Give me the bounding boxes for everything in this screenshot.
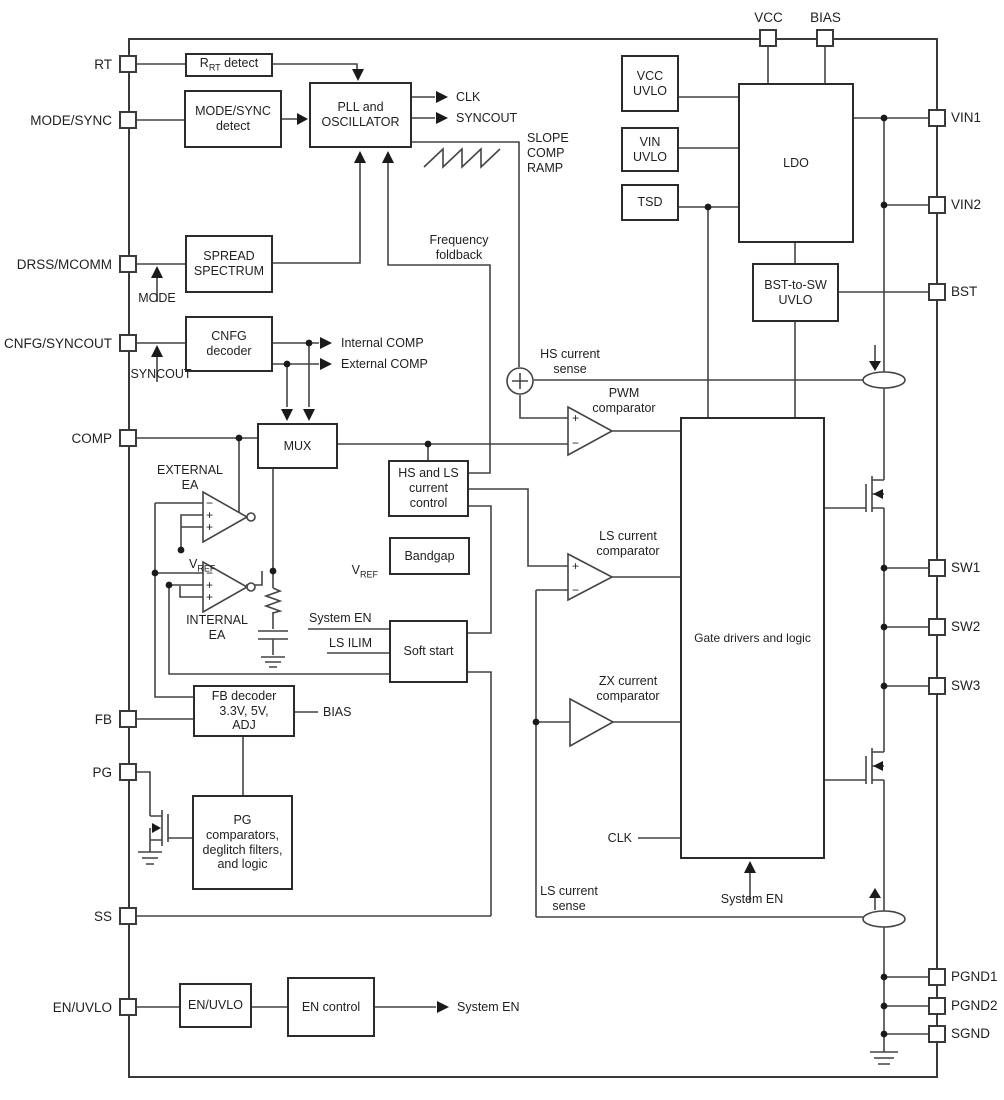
block-rrt-detect: RRT detect [185,53,273,77]
label-system-en-out: System EN [457,1000,520,1015]
pin-pg [119,763,137,781]
pin-label-sw1: SW1 [951,561,980,575]
pin-label-vin1: VIN1 [951,111,981,125]
pin-mode-sync [119,111,137,129]
pin-label-sw3: SW3 [951,679,980,693]
block-ldo: LDO [738,83,854,243]
label-syncout-in: SYNCOUT [127,367,195,382]
block-gate-drivers: Gate drivers and logic [680,417,825,859]
block-en-uvlo: EN/UVLO [179,983,252,1028]
pin-label-vcc: VCC [750,11,787,25]
block-bandgap: Bandgap [389,537,470,575]
pin-label-sw2: SW2 [951,620,980,634]
block-cnfg-decoder: CNFG decoder [185,316,273,372]
pwm-comparator-plus: + [572,412,579,424]
internal-ea-plus2: + [206,591,213,603]
block-pg-comparators: PG comparators, deglitch filters, and lo… [192,795,293,890]
pin-label-bias: BIAS [807,11,844,25]
label-mode: MODE [132,291,182,306]
pin-bst [928,283,946,301]
label-hs-current-sense: HS current sense [532,347,608,377]
pin-ss [119,907,137,925]
block-en-control: EN control [287,977,375,1037]
label-syncout-out: SYNCOUT [456,111,517,126]
ls-comparator-minus: − [572,584,579,596]
block-mode-sync-detect: MODE/SYNC detect [184,90,282,148]
pin-label-cnfg-syncout: CNFG/SYNCOUT [4,337,112,351]
block-mux: MUX [257,423,338,469]
pin-vin1 [928,109,946,127]
label-clk-in: CLK [600,831,632,846]
functional-block-diagram: RRT detect MODE/SYNC detect PLL and OSCI… [0,0,1004,1100]
pin-label-vin2: VIN2 [951,198,981,212]
ls-comparator-plus: + [572,560,579,572]
label-ls-current-comparator: LS current comparator [586,529,670,559]
label-internal-comp: Internal COMP [341,336,424,351]
pin-label-drss-mcomm: DRSS/MCOMM [17,258,112,272]
pin-label-rt: RT [94,58,112,72]
pin-label-mode-sync: MODE/SYNC [30,114,112,128]
label-pwm-comparator: PWM comparator [584,386,664,416]
label-external-comp: External COMP [341,357,428,372]
label-bias-out: BIAS [323,705,352,720]
label-clk-out: CLK [456,90,480,105]
pin-label-en-uvlo: EN/UVLO [53,1001,112,1015]
block-bst-to-sw-uvlo: BST-to-SW UVLO [752,263,839,322]
pin-label-pgnd1: PGND1 [951,970,998,984]
pin-pgnd1 [928,968,946,986]
block-hs-ls-current-control: HS and LS current control [388,460,469,517]
label-external-ea: EXTERNAL EA [152,463,228,493]
pin-vin2 [928,196,946,214]
pin-label-bst: BST [951,285,977,299]
pin-sw3 [928,677,946,695]
pin-label-comp: COMP [72,432,113,446]
label-system-en-softstart: System EN [309,611,372,626]
block-vin-uvlo: VIN UVLO [621,127,679,172]
label-zx-current-comparator: ZX current comparator [586,674,670,704]
block-vcc-uvlo: VCC UVLO [621,55,679,112]
pin-sgnd [928,1025,946,1043]
pin-cnfg-syncout [119,334,137,352]
label-frequency-foldback: Frequency foldback [413,233,505,263]
pin-fb [119,710,137,728]
label-system-en-gate: System EN [712,892,792,907]
pin-en-uvlo [119,998,137,1016]
pin-label-fb: FB [95,713,112,727]
block-spread-spectrum: SPREAD SPECTRUM [185,235,273,293]
pin-comp [119,429,137,447]
label-ls-current-sense: LS current sense [531,884,607,914]
block-pll-oscillator: PLL and OSCILLATOR [309,82,412,148]
pin-label-ss: SS [94,910,112,924]
label-ls-ilim: LS ILIM [329,636,372,651]
pin-vcc [759,29,777,47]
label-slope-comp-ramp: SLOPE COMP RAMP [527,131,569,175]
external-ea-plus2: + [206,521,213,533]
pin-bias [816,29,834,47]
pin-label-pg: PG [92,766,112,780]
pin-label-sgnd: SGND [951,1027,990,1041]
label-vref-bandgap: VREF [340,548,378,580]
pin-sw1 [928,559,946,577]
pin-pgnd2 [928,997,946,1015]
label-internal-ea: INTERNAL EA [179,613,255,643]
pwm-comparator-minus: − [572,437,579,449]
rrt-detect-label: RRT detect [200,56,258,73]
pin-drss-mcomm [119,255,137,273]
block-fb-decoder: FB decoder 3.3V, 5V, ADJ [193,685,295,737]
pin-sw2 [928,618,946,636]
block-tsd: TSD [621,184,679,221]
block-soft-start: Soft start [389,620,468,683]
pin-label-pgnd2: PGND2 [951,999,998,1013]
pin-rt [119,55,137,73]
